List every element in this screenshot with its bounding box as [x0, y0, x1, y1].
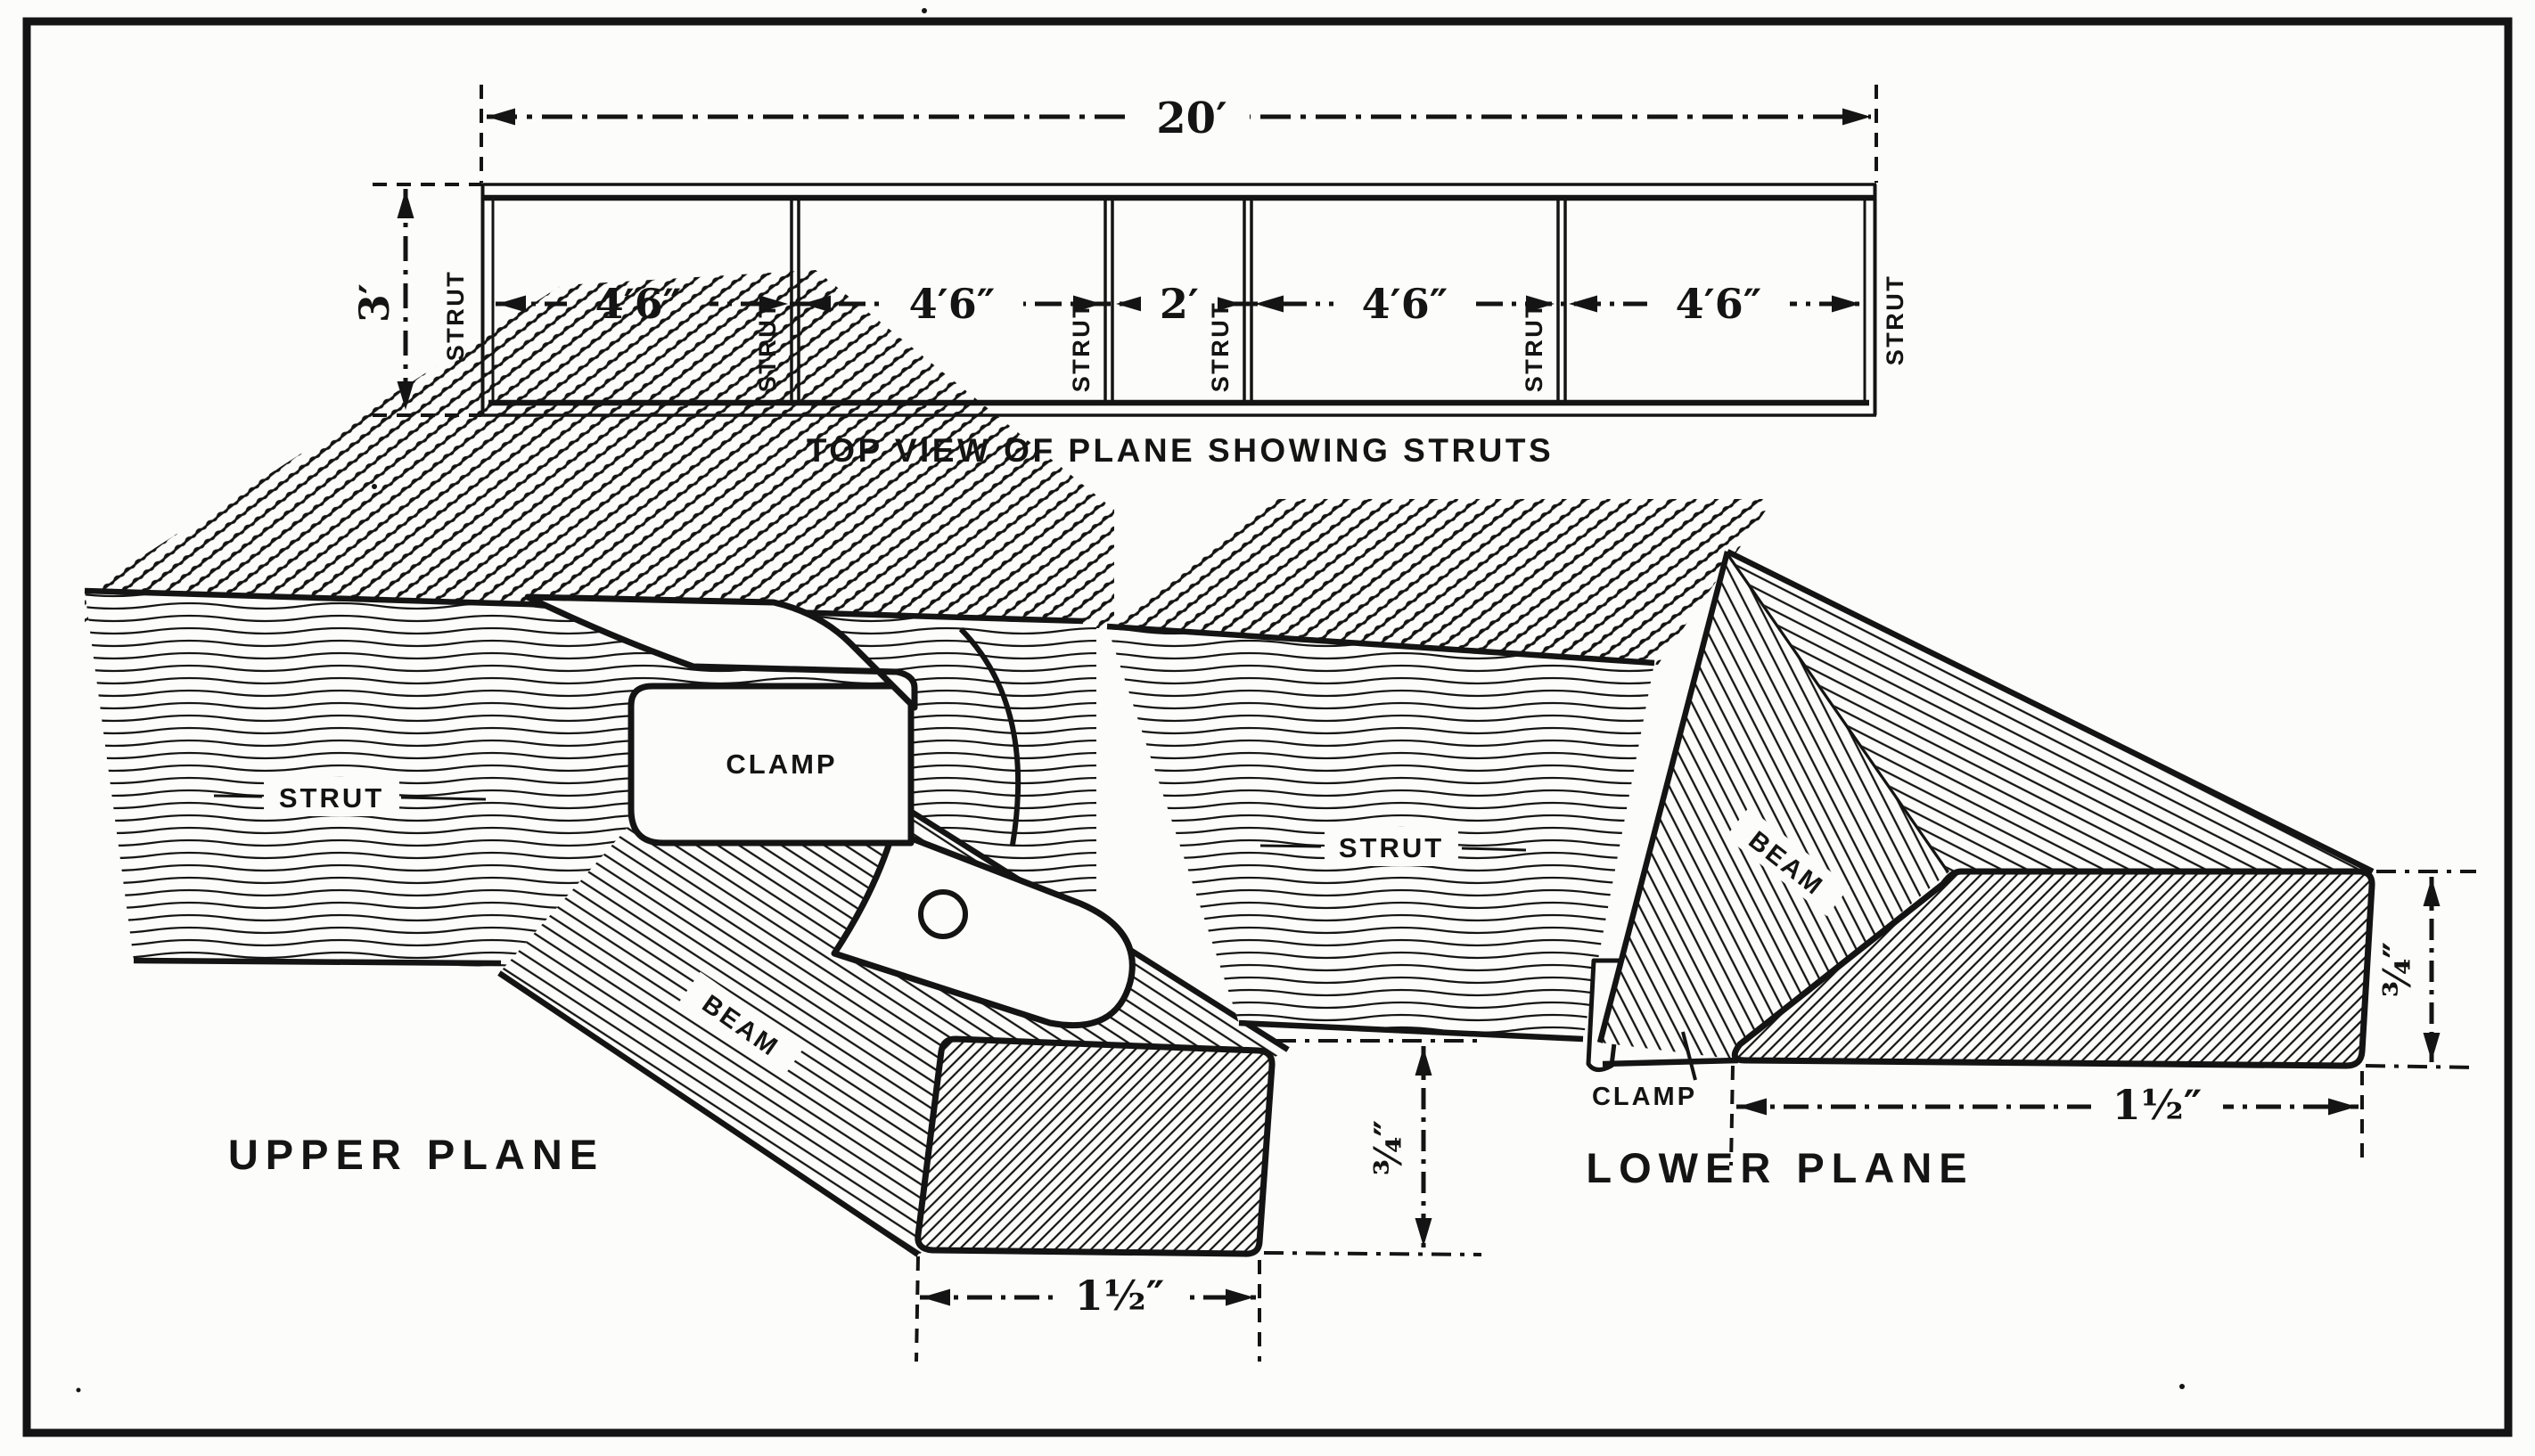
dim-label-bay-5: 4′6″	[1676, 280, 1762, 328]
strut-label-divider-2: STRUT	[1068, 301, 1095, 393]
dim-label-bay-2: 4′6″	[909, 280, 996, 328]
lower-clamp-bottom-line	[1603, 1060, 1738, 1064]
upper-plane-caption: UPPER PLANE	[228, 1131, 604, 1178]
lower-clamp-label: CLAMP	[1592, 1083, 1697, 1111]
bolt-hole	[921, 892, 965, 937]
scanned-technical-figure: 20′ 3′ 4′6″ 4′6″ 2′	[0, 0, 2535, 1456]
figure-canvas: 20′ 3′ 4′6″ 4′6″ 2′	[0, 0, 2535, 1456]
lower-plane-caption: LOWER PLANE	[1586, 1144, 1973, 1191]
dim-label-bay-4: 4′6″	[1362, 280, 1448, 328]
dim-label-3ft: 3′	[350, 283, 398, 323]
lower-width-label: 1½″	[2112, 1081, 2203, 1129]
lower-dim-thickness: ¾″	[2366, 871, 2476, 1067]
lower-thickness-label: ¾″	[2375, 942, 2419, 998]
lower-strut-label: STRUT	[1339, 832, 1444, 863]
strut-label-left-edge: STRUT	[442, 270, 469, 362]
strut-label-right-edge: STRUT	[1882, 274, 1908, 366]
upper-strut-label: STRUT	[279, 782, 384, 814]
upper-clamp-label: CLAMP	[726, 748, 837, 780]
dim-label-20ft: 20′	[1156, 94, 1226, 143]
lower-plane-detail: STRUT BEAM CLAMP ¾″ 1½″ LOWER PLANE	[1107, 499, 2476, 1191]
upper-dim-width: 1½″	[916, 1256, 1259, 1362]
dim-label-bay-3: 2′	[1160, 280, 1199, 328]
upper-width-label: 1½″	[1075, 1272, 1165, 1320]
strut-label-divider-3: STRUT	[1207, 301, 1234, 393]
dim-overall-span: 20′	[481, 85, 1876, 183]
strut-label-divider-4: STRUT	[1521, 301, 1547, 393]
upper-dim-thickness: ¾″	[1264, 1041, 1481, 1255]
upper-thickness-label: ¾″	[1366, 1120, 1410, 1176]
